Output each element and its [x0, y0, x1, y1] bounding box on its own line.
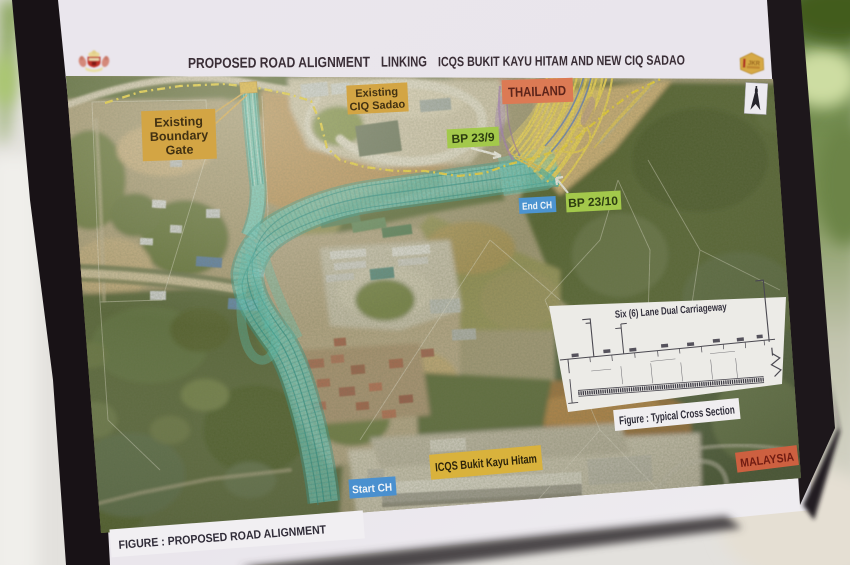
- svg-text:PROPOSED ROAD ALIGNMENT: PROPOSED ROAD ALIGNMENT: [188, 55, 370, 72]
- svg-text:LINKING: LINKING: [381, 54, 427, 70]
- svg-text:ICQS BUKIT KAYU HITAM AND NEW: ICQS BUKIT KAYU HITAM AND NEW CIQ SADAO: [438, 53, 685, 70]
- svg-text:BP 23/10: BP 23/10: [568, 194, 619, 211]
- svg-text:THAILAND: THAILAND: [508, 83, 567, 100]
- svg-text:End CH: End CH: [522, 200, 553, 213]
- svg-text:Gate: Gate: [165, 142, 193, 157]
- svg-text:N: N: [754, 88, 758, 94]
- svg-text:Boundary: Boundary: [150, 128, 209, 144]
- svg-text:Existing: Existing: [355, 86, 398, 100]
- svg-text:BP 23/9: BP 23/9: [451, 130, 495, 146]
